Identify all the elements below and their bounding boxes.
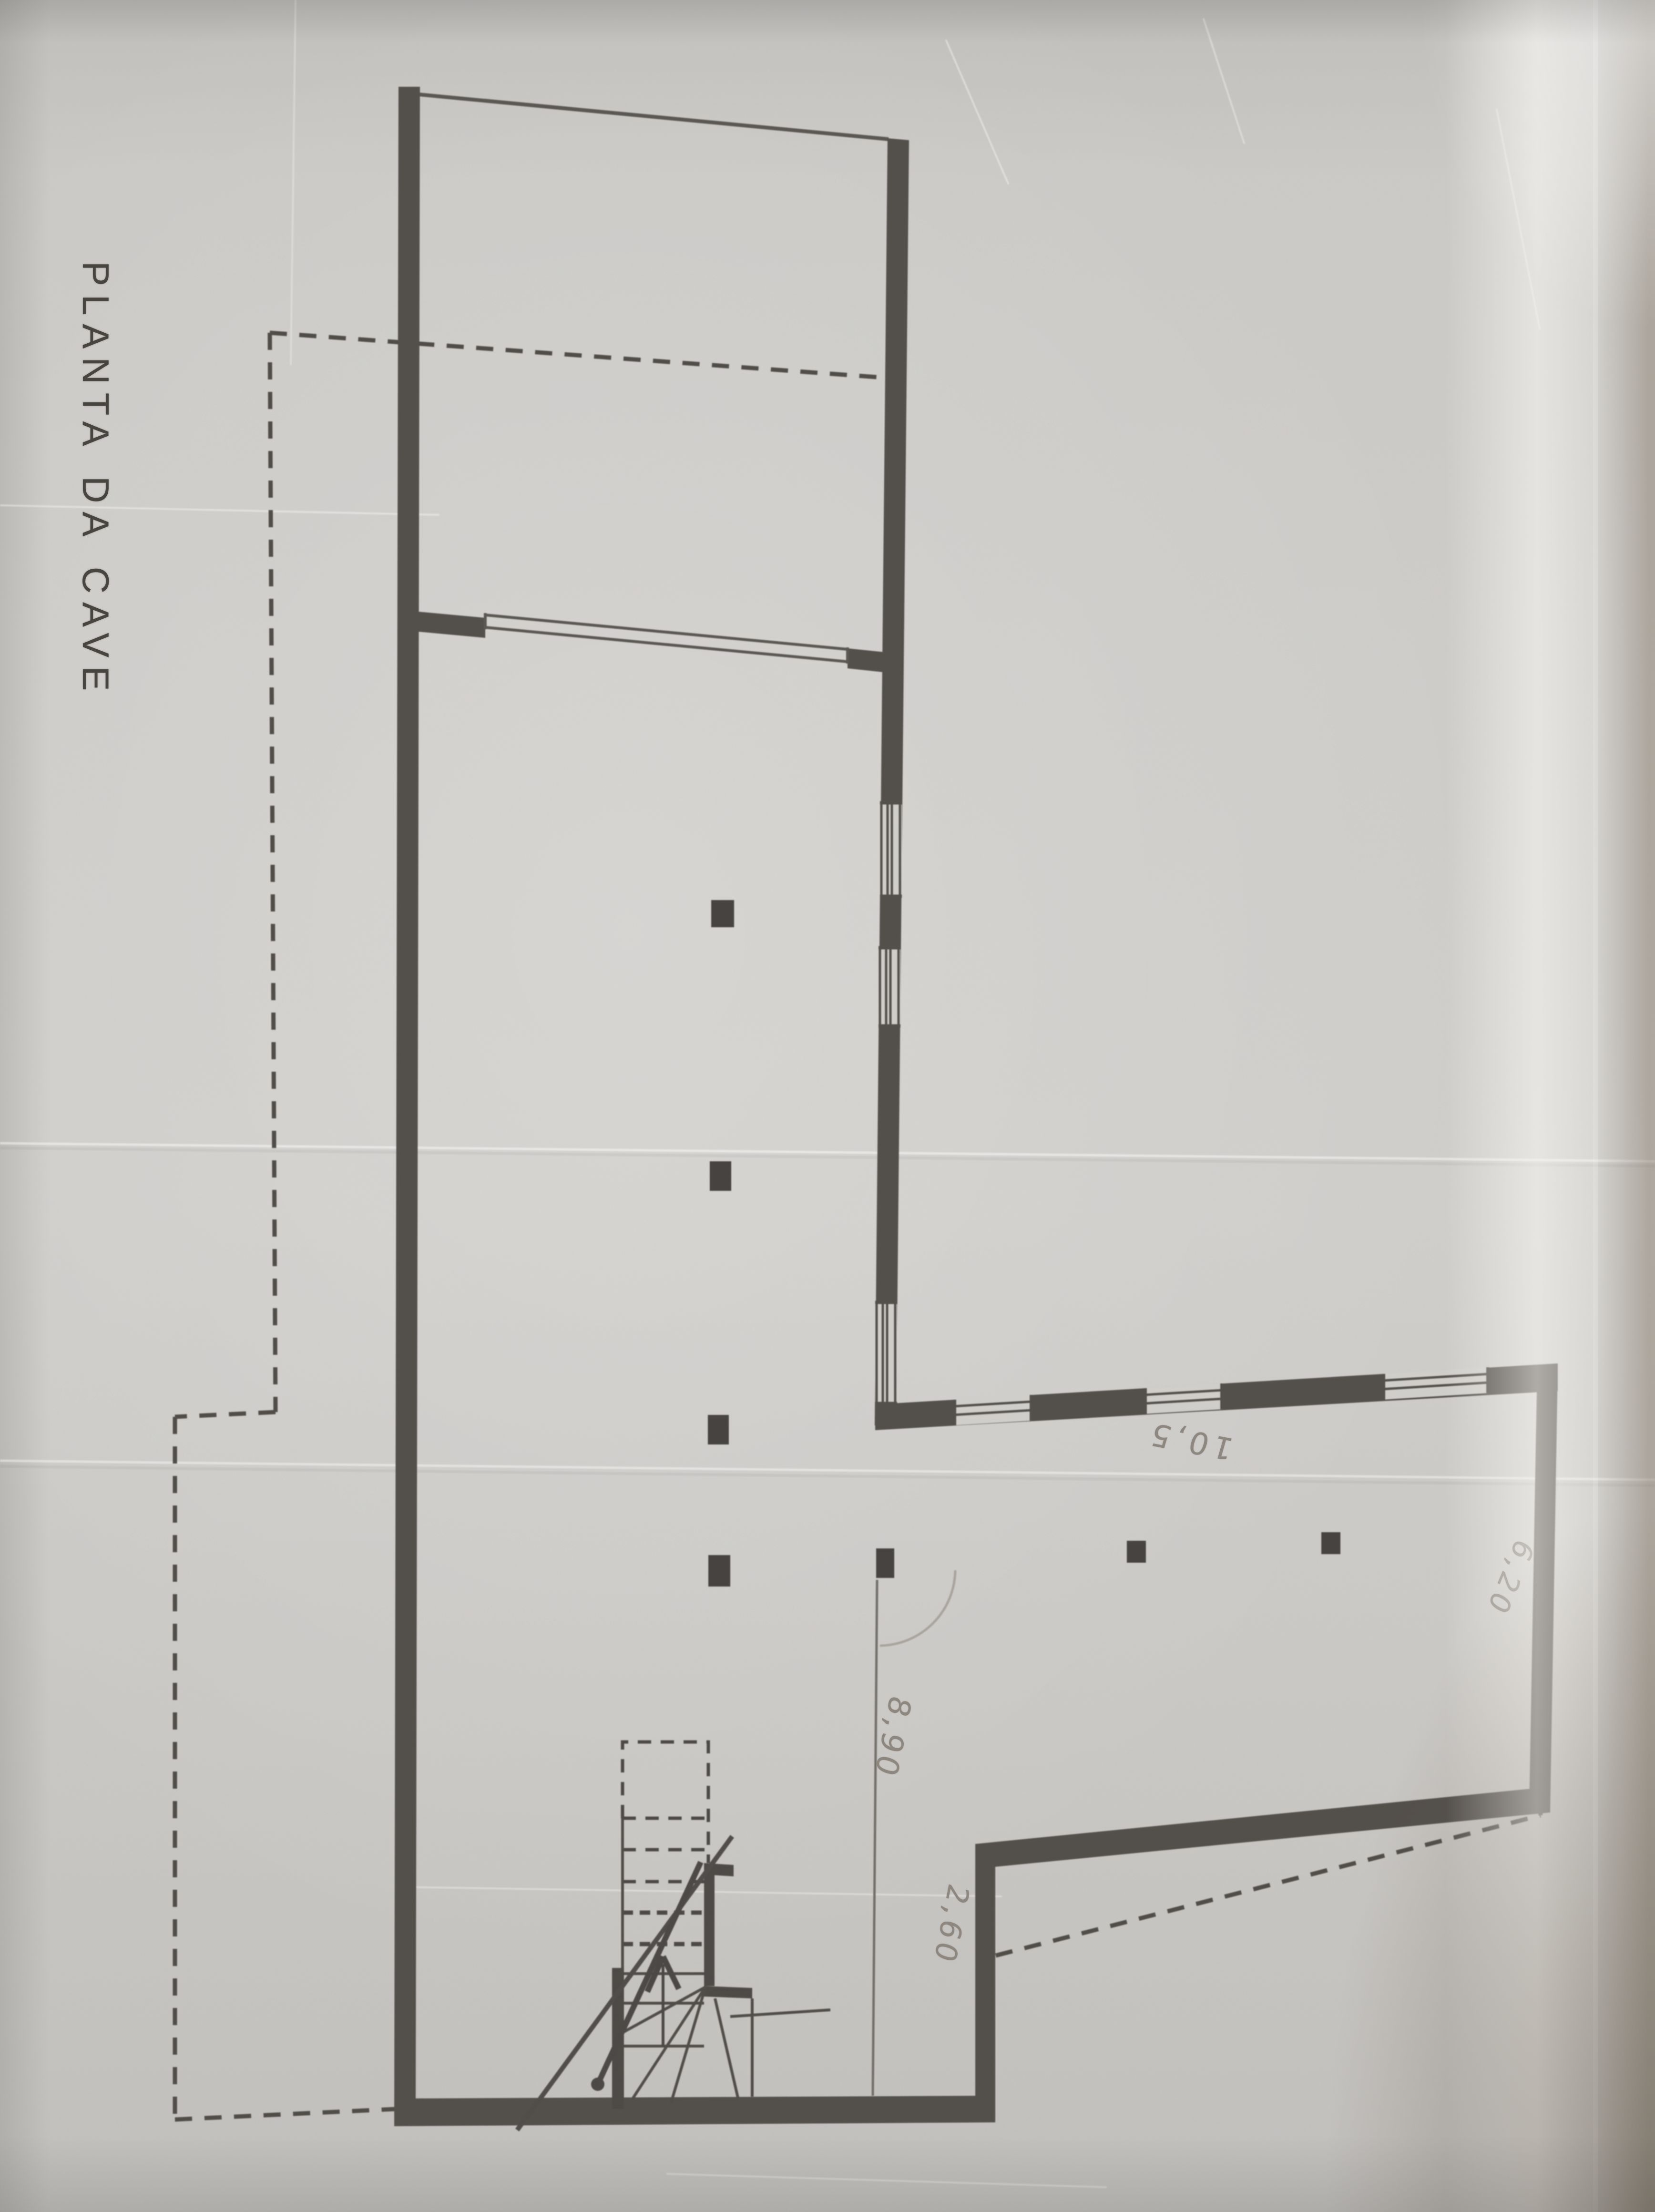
floor-plan-drawing — [0, 0, 1655, 2212]
photo-grain — [0, 0, 1655, 2212]
scanned-floor-plan-page: PLANTA DA CAVE 8,90 2,60 10,5 6,20 — [0, 0, 1655, 2212]
plan-title: PLANTA DA CAVE — [74, 261, 117, 699]
